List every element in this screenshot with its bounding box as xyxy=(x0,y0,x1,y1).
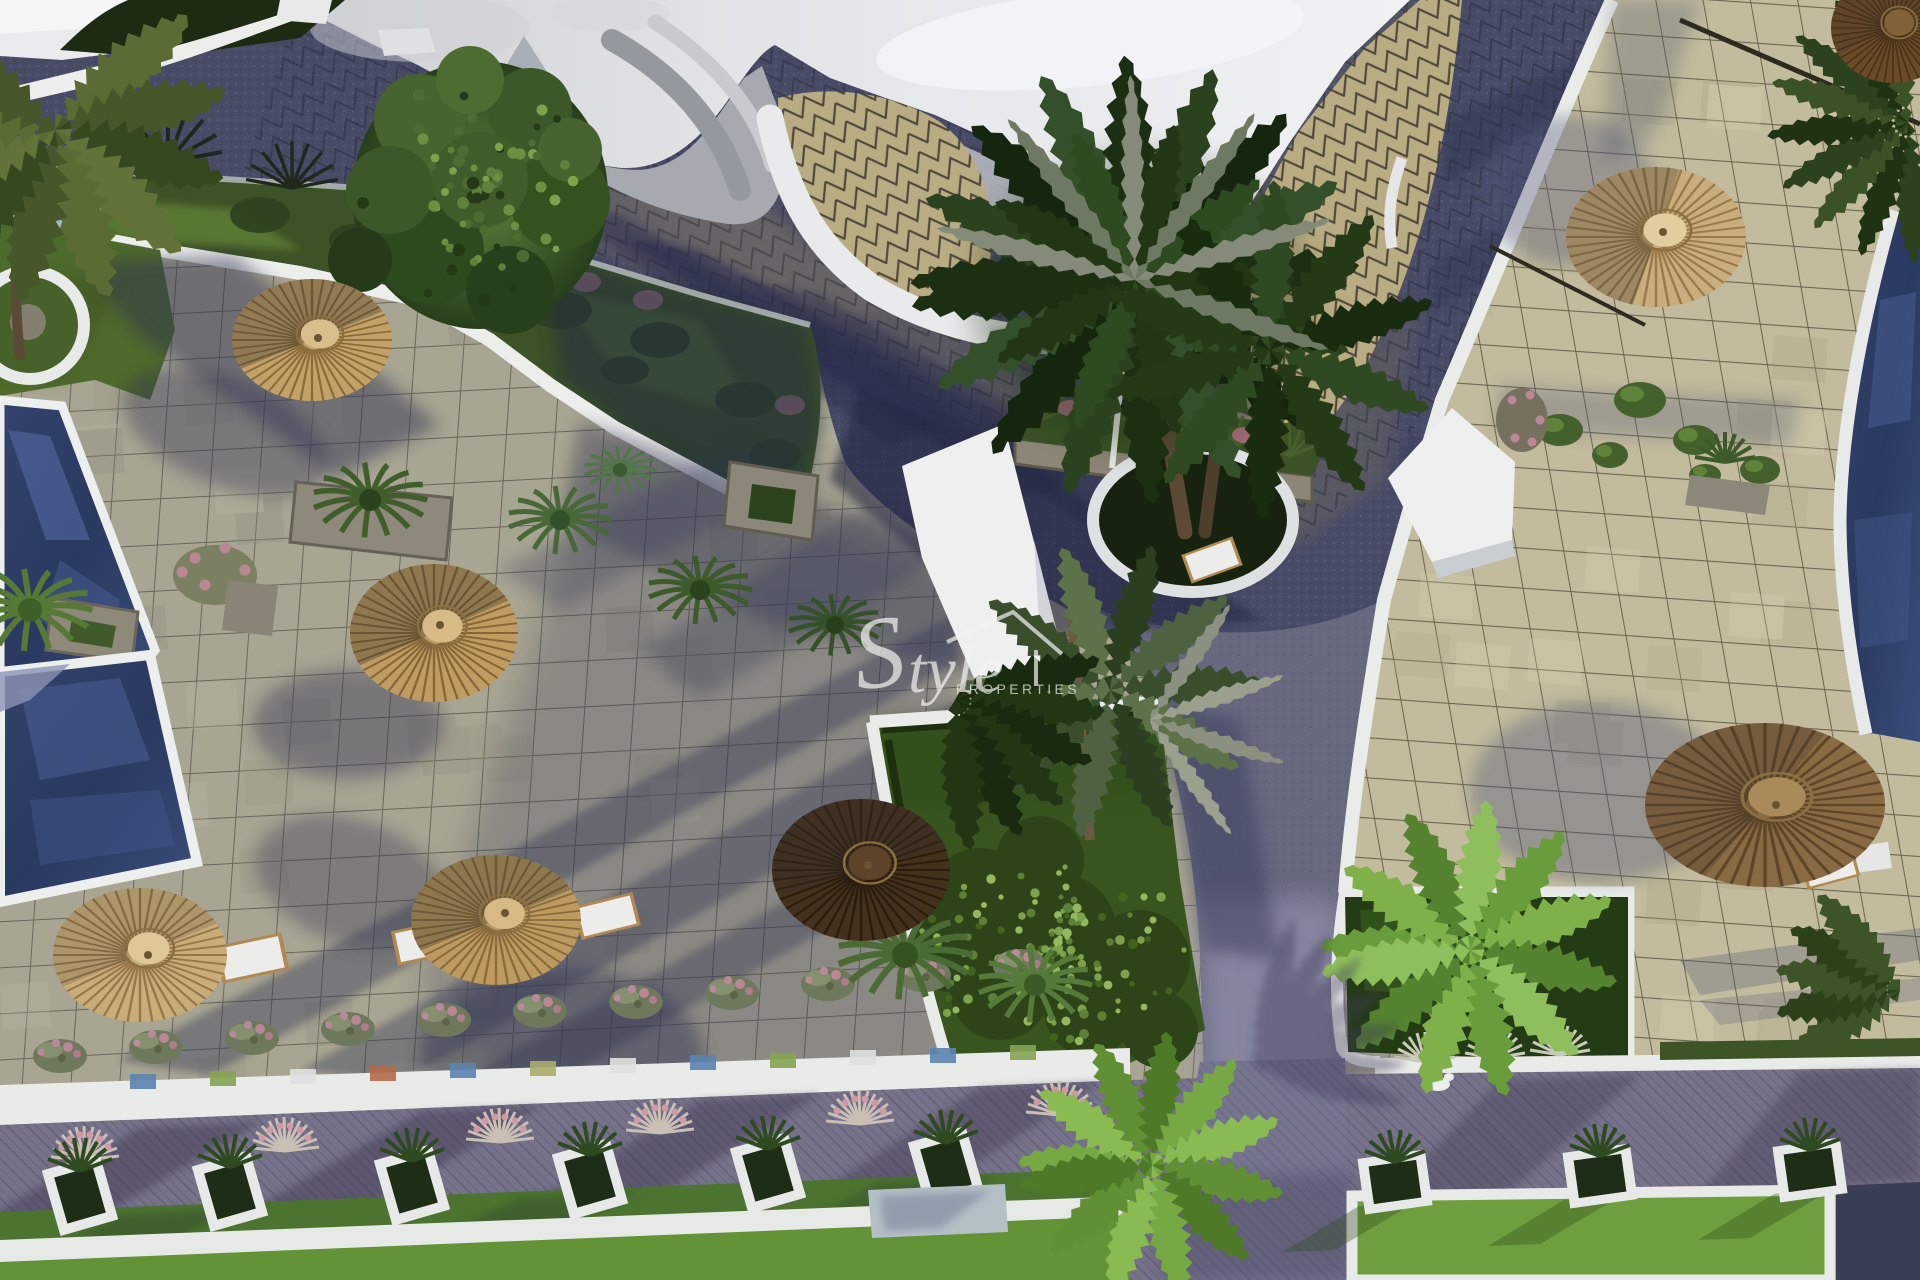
svg-text:PROPERTIES: PROPERTIES xyxy=(956,681,1080,697)
